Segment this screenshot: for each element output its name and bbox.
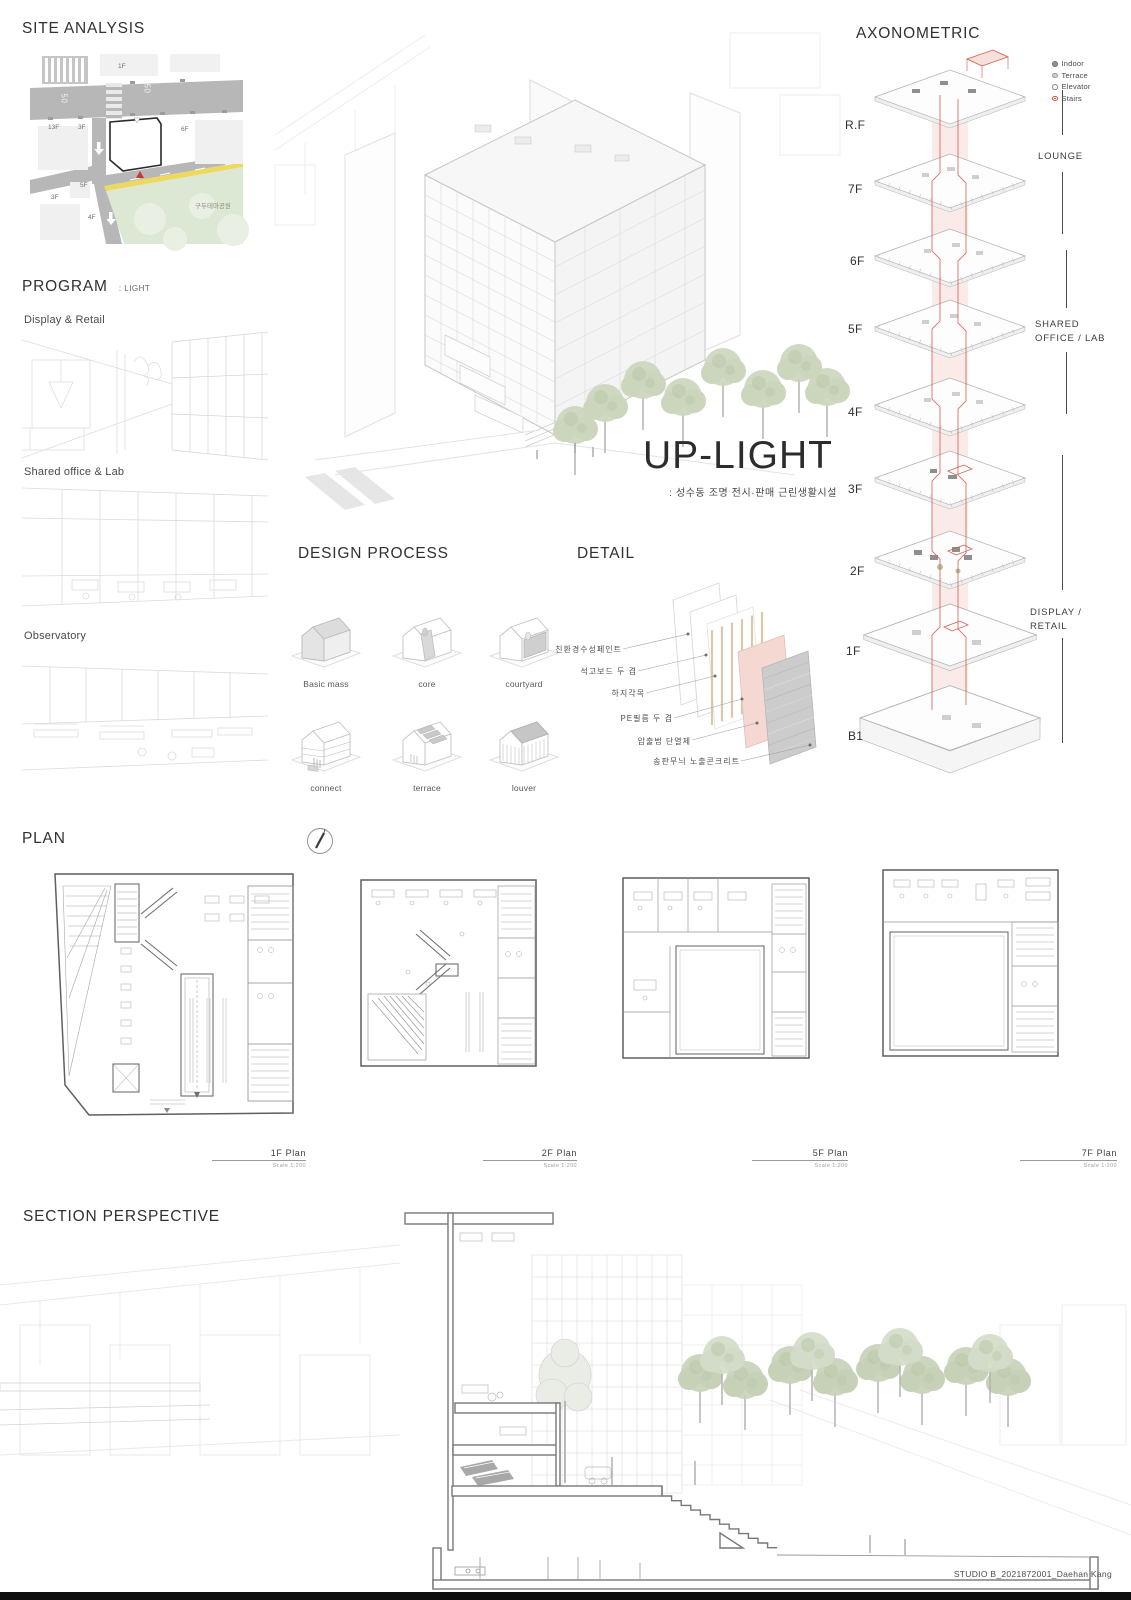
zone-label-shared-office: SHARED OFFICE / LAB: [1035, 318, 1107, 346]
site-boundary: [110, 118, 161, 171]
step-label: courtyard: [481, 679, 567, 689]
floor-label-6f: 6F: [850, 254, 865, 268]
project-subtitle: : 성수동 조명 전시·판매 근린생활시설: [669, 484, 837, 499]
zone-bar: [1062, 172, 1063, 234]
floor-label-b1: B1: [848, 729, 863, 743]
plan-caption-5f: 5F Plan Scale 1:200: [752, 1148, 848, 1169]
author-credit: STUDIO B_2021872001_Daehan Kang: [954, 1569, 1112, 1579]
axon-stack-graphic: [852, 55, 1064, 770]
floor-label-7f: 7F: [848, 182, 863, 196]
connect-icon: [286, 702, 366, 776]
site-analysis-title: SITE ANALYSIS: [22, 20, 145, 38]
step-label: Basic mass: [283, 679, 369, 689]
step-label: connect: [283, 783, 369, 793]
zone-bar: [1066, 352, 1067, 414]
louver-icon: [484, 702, 564, 776]
design-process-title: DESIGN PROCESS: [298, 545, 449, 563]
legend-label: Stairs: [1062, 94, 1082, 103]
program-title-text: PROGRAM: [22, 278, 108, 295]
zone-bar: [1062, 638, 1063, 743]
plan-caption-1f: 1F Plan Scale 1:200: [212, 1148, 306, 1169]
map-label-4f: 4F: [88, 214, 96, 221]
process-step-connect: connect: [283, 702, 369, 793]
map-label-13f: 13F: [48, 124, 59, 131]
zone-bar: [1066, 250, 1067, 308]
floor-label-2f: 2F: [850, 564, 865, 578]
plan-title: PLAN: [22, 830, 66, 848]
detail-layer-concrete: 송판무늬 노출콘크리트: [653, 756, 740, 767]
map-label-5f: 5F: [80, 182, 88, 189]
map-label-6f: 6F: [181, 126, 189, 133]
plan-2f-graphic: [358, 872, 540, 1069]
observatory-rendering: [22, 652, 268, 774]
zone-label-lounge: LOUNGE: [1038, 150, 1083, 164]
plan-caption-label: 1F Plan: [212, 1148, 306, 1161]
floor-label-rf: R.F: [845, 118, 865, 132]
detail-layer-paint: 친환경수성페인트: [555, 644, 622, 655]
detail-layer-pe-film: PE필름 두 겹: [620, 713, 673, 724]
section-perspective-graphic: [0, 1205, 1131, 1600]
plan-1f-graphic: [55, 848, 310, 1125]
program-item-display-retail: Display & Retail: [24, 314, 105, 326]
process-step-terrace: terrace: [384, 702, 470, 793]
detail-exploded-graphic: [560, 540, 850, 790]
detail-layer-gypsum: 석고보드 두 겹: [580, 666, 637, 677]
zone-label-display-retail: DISPLAY / RETAIL: [1030, 606, 1122, 634]
legend-label: Elevator: [1062, 82, 1091, 91]
program-subtitle: : LIGHT: [119, 284, 151, 293]
plan-caption-7f: 7F Plan Scale 1:200: [1020, 1148, 1117, 1169]
core-icon: [387, 598, 467, 672]
legend-label: Indoor: [1062, 59, 1084, 68]
step-label: core: [384, 679, 470, 689]
plan-caption-label: 7F Plan: [1020, 1148, 1117, 1161]
plan-caption-label: 2F Plan: [483, 1148, 577, 1161]
process-step-basic-mass: Basic mass: [283, 598, 369, 689]
step-label: louver: [481, 783, 567, 793]
program-item-observatory: Observatory: [24, 630, 86, 642]
zone-bar: [1062, 455, 1063, 590]
axonometric-title: AXONOMETRIC: [856, 25, 980, 43]
plan-caption-scale: Scale 1:200: [212, 1161, 306, 1169]
map-label-3f-a: 3F: [78, 124, 86, 131]
detail-layer-battens: 하지각목: [612, 688, 645, 699]
project-title: UP-LIGHT: [643, 434, 833, 478]
terrace-icon: [387, 702, 467, 776]
plan-7f-graphic: [880, 866, 1062, 1060]
bottom-bar: [0, 1592, 1131, 1600]
process-step-courtyard: courtyard: [481, 598, 567, 689]
plan-caption-scale: Scale 1:200: [1020, 1161, 1117, 1169]
detail-layer-insulation: 압출법 단열제: [638, 736, 691, 747]
zone-bar: [1062, 90, 1063, 135]
floor-label-4f: 4F: [848, 405, 863, 419]
program-title: PROGRAM : LIGHT: [22, 278, 150, 296]
floor-label-5f: 5F: [848, 322, 863, 336]
shared-office-rendering: [22, 484, 268, 610]
plan-caption-scale: Scale 1:200: [752, 1161, 848, 1169]
step-label: terrace: [384, 783, 470, 793]
display-retail-rendering: [22, 332, 268, 460]
site-map: 1F 50 50 13F 3F 6F 5F 3F 4F 구두테마공원: [30, 54, 243, 244]
process-step-louver: louver: [481, 702, 567, 793]
plan-caption-2f: 2F Plan Scale 1:200: [483, 1148, 577, 1169]
map-label-3f-b: 3F: [51, 194, 59, 201]
map-label-speed-50-west: 50: [59, 94, 68, 104]
basic-mass-icon: [286, 598, 366, 672]
plan-caption-label: 5F Plan: [752, 1148, 848, 1161]
map-label-speed-50-east: 50: [142, 84, 151, 94]
floor-label-3f: 3F: [848, 482, 863, 496]
courtyard-icon: [484, 598, 564, 672]
floor-label-1f: 1F: [846, 644, 861, 658]
process-step-core: core: [384, 598, 470, 689]
plan-caption-scale: Scale 1:200: [483, 1161, 577, 1169]
legend-label: Terrace: [1062, 71, 1088, 80]
map-label-park: 구두테마공원: [195, 200, 231, 210]
site-map-graphic: [30, 54, 243, 244]
map-label-1f: 1F: [118, 63, 126, 70]
program-item-shared-office: Shared office & Lab: [24, 466, 124, 478]
plan-5f-graphic: [620, 872, 812, 1062]
